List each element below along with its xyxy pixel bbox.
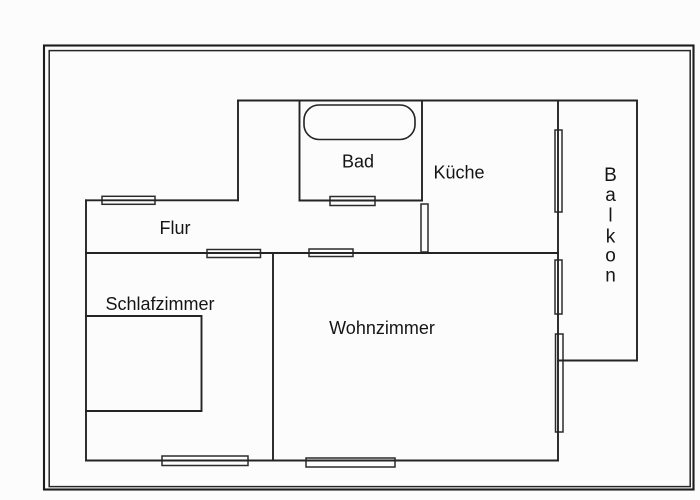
svg-text:Flur: Flur [160,218,191,238]
svg-text:Wohnzimmer: Wohnzimmer [329,318,435,338]
svg-text:l: l [608,205,612,226]
svg-text:Küche: Küche [433,163,484,183]
svg-text:n: n [605,265,616,286]
svg-text:Bad: Bad [342,152,374,172]
svg-text:Schlafzimmer: Schlafzimmer [105,294,214,314]
svg-text:a: a [605,185,616,206]
svg-text:B: B [604,165,617,186]
svg-text:o: o [605,246,616,267]
svg-text:k: k [606,227,616,248]
